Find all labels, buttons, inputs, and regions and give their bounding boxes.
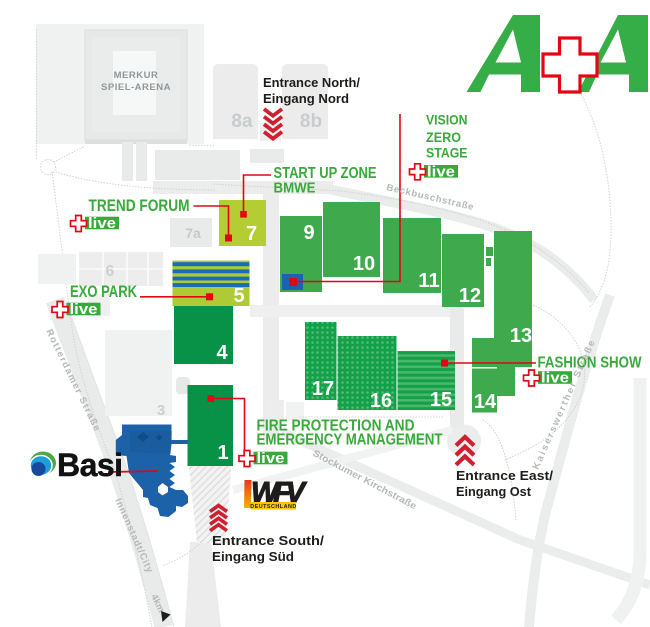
svg-text:17: 17 <box>312 378 334 400</box>
svg-text:8a: 8a <box>231 111 253 132</box>
svg-text:9: 9 <box>303 222 314 244</box>
svg-text:10: 10 <box>353 253 375 275</box>
svg-text:4: 4 <box>216 342 228 364</box>
svg-text:BMWE: BMWE <box>274 180 316 197</box>
svg-text:13: 13 <box>510 325 532 347</box>
svg-text:Entrance South/: Entrance South/ <box>212 533 324 548</box>
svg-text:TREND FORUM: TREND FORUM <box>89 197 190 215</box>
svg-text:DEUTSCHLAND: DEUTSCHLAND <box>250 504 297 510</box>
svg-text:SPIEL-ARENA: SPIEL-ARENA <box>101 82 171 93</box>
svg-text:Eingang Ost: Eingang Ost <box>456 484 532 499</box>
svg-text:5: 5 <box>233 285 244 307</box>
svg-text:16: 16 <box>370 390 392 412</box>
svg-text:EMERGENCY MANAGEMENT: EMERGENCY MANAGEMENT <box>257 432 443 449</box>
svg-text:Eingang Nord: Eingang Nord <box>263 91 349 106</box>
svg-text:15: 15 <box>430 389 452 411</box>
svg-text:VISION: VISION <box>426 112 468 128</box>
svg-text:Basi: Basi <box>57 447 123 483</box>
svg-text:1: 1 <box>217 442 228 464</box>
svg-text:11: 11 <box>418 270 439 292</box>
svg-text:7: 7 <box>246 223 257 245</box>
svg-text:12: 12 <box>459 285 481 307</box>
svg-text:8b: 8b <box>300 111 322 132</box>
svg-text:Eingang Süd: Eingang Süd <box>212 549 294 564</box>
svg-text:STAGE: STAGE <box>426 144 468 160</box>
svg-text:ZERO: ZERO <box>426 129 461 145</box>
svg-text:14: 14 <box>474 391 497 413</box>
svg-text:EXO PARK: EXO PARK <box>70 282 138 301</box>
svg-text:7a: 7a <box>185 225 201 241</box>
svg-text:3: 3 <box>157 402 165 419</box>
svg-text:6: 6 <box>106 263 115 280</box>
svg-text:Entrance North/: Entrance North/ <box>263 75 360 90</box>
svg-text:MERKUR: MERKUR <box>114 70 159 81</box>
